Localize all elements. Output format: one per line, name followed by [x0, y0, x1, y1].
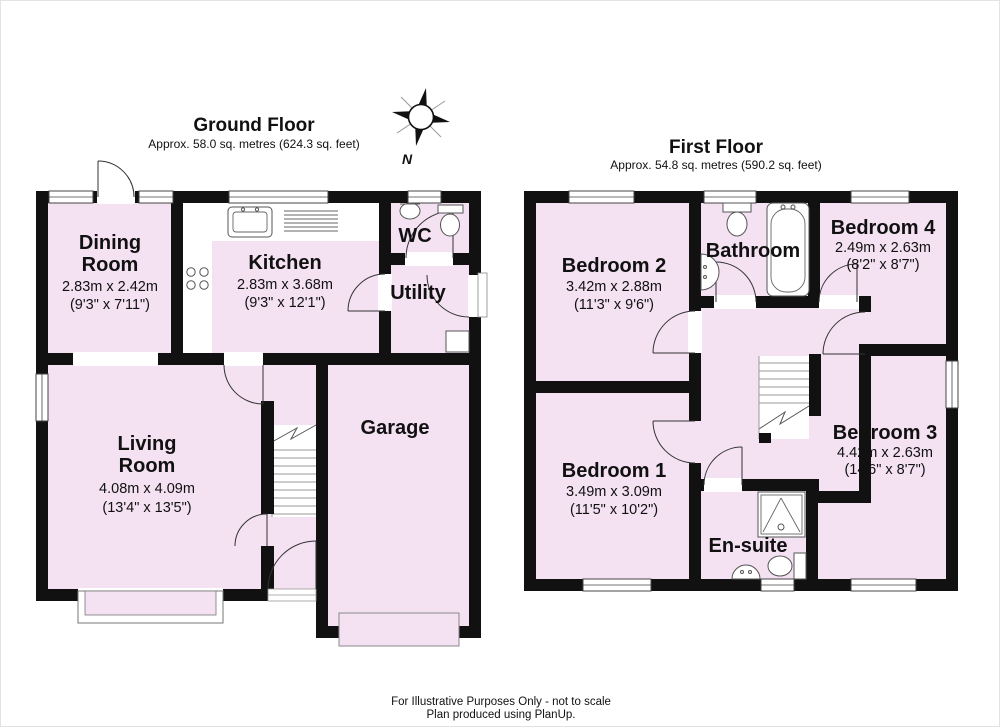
room-dims-metric: 3.42m x 2.88m — [566, 279, 662, 295]
room-dims-imperial: (9'3" x 12'1") — [244, 295, 325, 311]
ground-floor-title: Ground Floor — [193, 115, 315, 136]
room-wc-label: WC — [398, 225, 431, 247]
shower-icon — [758, 492, 805, 537]
room-utility-label: Utility — [390, 282, 446, 304]
footer: For Illustrative Purposes Only - not to … — [391, 696, 611, 721]
stairs-icon — [272, 425, 316, 517]
room-dims-imperial: (11'5" x 10'2") — [570, 502, 658, 518]
bay-window — [78, 591, 223, 623]
floor-plan-svg: N Ground Floor Approx. 58.0 sq. metres (… — [1, 1, 1000, 728]
room-label: Bedroom 2 — [562, 255, 666, 277]
room-dims-metric: 4.42m x 2.63m — [837, 445, 933, 461]
room-label: Dining — [79, 232, 141, 254]
room-dims-metric: 3.49m x 3.09m — [566, 484, 662, 500]
room-label: Room — [82, 254, 139, 276]
room-bedroom-2: Bedroom 2 3.42m x 2.88m (11'3" x 9'6") — [562, 255, 666, 313]
window — [408, 191, 441, 203]
room-ensuite-label: En-suite — [709, 535, 788, 557]
entrance-threshold — [268, 589, 316, 601]
compass-icon: N — [392, 88, 450, 167]
room-dims-imperial: (14'6" x 8'7") — [844, 462, 925, 478]
window — [946, 361, 958, 408]
room-kitchen: Kitchen 2.83m x 3.68m (9'3" x 12'1") — [237, 252, 333, 311]
footer-disclaimer: For Illustrative Purposes Only - not to … — [391, 696, 611, 708]
room-bedroom-3: Bedroom 3 4.42m x 2.63m (14'6" x 8'7") — [833, 422, 937, 478]
stairs-icon — [759, 356, 809, 439]
room-garage-label: Garage — [361, 417, 430, 439]
room-dims-metric: 2.49m x 2.63m — [835, 240, 931, 256]
room-bedroom-1: Bedroom 1 3.49m x 3.09m (11'5" x 10'2") — [562, 460, 666, 518]
room-label: Bedroom 3 — [833, 422, 937, 444]
window — [569, 191, 634, 203]
window — [583, 579, 651, 591]
window — [229, 191, 328, 203]
room-label: Bedroom 1 — [562, 460, 666, 482]
window — [704, 191, 756, 203]
window — [851, 191, 909, 203]
window — [36, 374, 48, 421]
utility-exterior-door — [478, 273, 487, 317]
wc-sink-icon — [400, 203, 420, 219]
window — [139, 191, 173, 203]
floor-plan-page: N Ground Floor Approx. 58.0 sq. metres (… — [0, 0, 1000, 727]
ground-floor-area: Approx. 58.0 sq. metres (624.3 sq. feet) — [148, 137, 359, 151]
window — [49, 191, 93, 203]
utility-appliance-icon — [446, 331, 469, 352]
footer-credit: Plan produced using PlanUp. — [427, 709, 576, 721]
room-label: Room — [119, 455, 176, 477]
compass-north-label: N — [402, 151, 413, 167]
room-dims-imperial: (9'3" x 7'11") — [70, 297, 150, 313]
window — [851, 579, 916, 591]
room-dims-imperial: (8'2" x 8'7") — [846, 257, 919, 273]
room-label: Kitchen — [248, 252, 321, 274]
first-floor-area: Approx. 54.8 sq. metres (590.2 sq. feet) — [610, 158, 821, 172]
room-dims-imperial: (13'4" x 13'5") — [102, 500, 191, 516]
room-label: Living — [118, 433, 177, 455]
kitchen-counter-top — [183, 203, 379, 241]
room-dims-metric: 2.83m x 2.42m — [62, 279, 158, 295]
room-dims-imperial: (11'3" x 9'6") — [574, 297, 654, 313]
room-bathroom-label: Bathroom — [706, 240, 800, 262]
room-dims-metric: 4.08m x 4.09m — [99, 481, 195, 497]
kitchen-counter-left — [183, 203, 212, 353]
garage-door — [339, 613, 459, 646]
room-dims-metric: 2.83m x 3.68m — [237, 277, 333, 293]
first-floor-title: First Floor — [669, 137, 764, 158]
window — [761, 579, 794, 591]
room-label: Bedroom 4 — [831, 217, 936, 239]
